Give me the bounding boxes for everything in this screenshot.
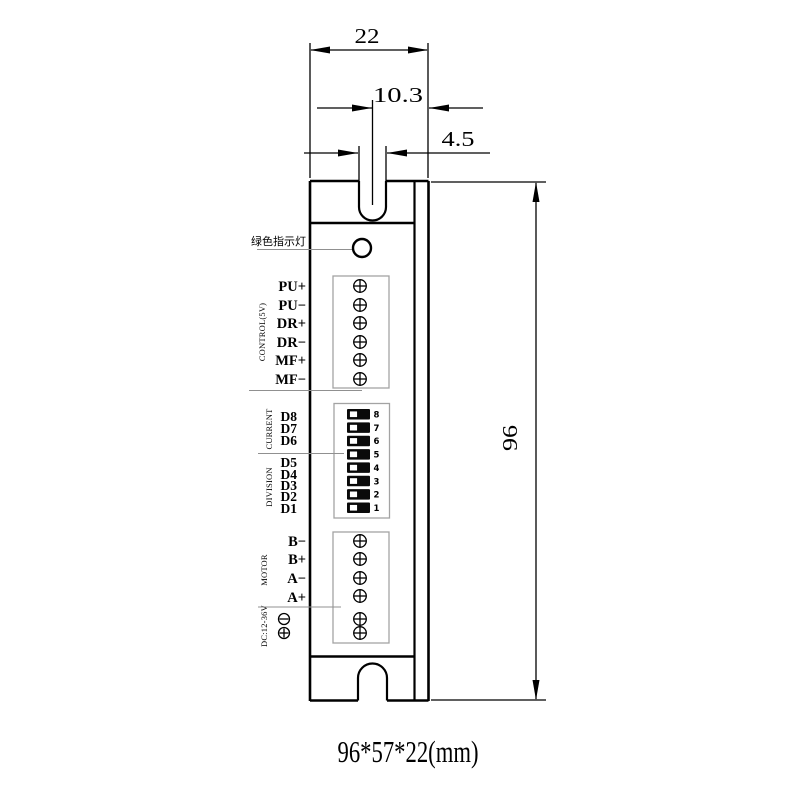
- dip-switch-knob-icon: [350, 464, 358, 471]
- dip-switch-number: 2: [374, 491, 380, 501]
- dip-switch-knob-icon: [350, 411, 358, 418]
- dip-pin-label: D6: [281, 433, 298, 448]
- overall-size-caption: 96*57*22(mm): [338, 734, 479, 769]
- dip-switch-knob-icon: [350, 505, 358, 512]
- dip-switch-block: [334, 404, 390, 519]
- screw-terminal-icon: [354, 535, 367, 548]
- dip-switch-knob-icon: [350, 491, 358, 498]
- motor-section: B− B+ A− A+ MOTOR DC:12-36V: [258, 532, 389, 647]
- arrow-left-icon: [387, 150, 407, 157]
- arrow-left-icon: [310, 47, 330, 54]
- dip-switch-8: 1: [347, 503, 380, 515]
- dip-pin-label: D1: [281, 501, 298, 516]
- screw-terminal-icon: [354, 317, 367, 330]
- dim-width-value: 22: [355, 24, 380, 48]
- dip-switch-number: 4: [374, 464, 380, 474]
- screw-terminal-icon: [354, 590, 367, 603]
- drawing-canvas: 22 10.3 4.5 96 绿色指示灯: [0, 0, 800, 800]
- current-group-label: CURRENT: [264, 408, 274, 450]
- control-pin-label: MF+: [275, 353, 306, 369]
- screw-terminal-icon: [354, 354, 367, 367]
- polarity-plus-icon: [279, 628, 290, 639]
- screw-terminal-icon: [354, 553, 367, 566]
- dip-switch-number: 8: [374, 411, 380, 421]
- dip-switch-5: 4: [347, 462, 380, 474]
- polarity-minus-icon: [279, 614, 290, 625]
- motor-pin-label: A+: [287, 590, 306, 606]
- dip-switch-6: 3: [347, 476, 380, 488]
- control-pin-label: PU+: [278, 279, 306, 295]
- control-section: PU+ PU− DR+ DR− MF+ MF− CONTROL(5V): [249, 276, 389, 391]
- motor-group-label: MOTOR: [259, 554, 269, 586]
- arrow-right-icon: [338, 150, 358, 157]
- control-group-label: CONTROL(5V): [257, 303, 267, 361]
- control-pin-label: PU−: [278, 298, 306, 314]
- screw-terminal-icon: [354, 336, 367, 349]
- indicator-label: 绿色指示灯: [251, 234, 306, 248]
- dip-switch-knob-icon: [350, 478, 358, 485]
- control-pin-label: DR−: [277, 335, 306, 351]
- dip-switch-number: 3: [374, 477, 380, 487]
- dip-switch-number: 6: [374, 437, 380, 447]
- device-body-outline: [310, 100, 429, 701]
- dimension-slot-4-5: 4.5: [304, 127, 490, 181]
- screw-terminal-icon: [354, 280, 367, 293]
- motor-pin-label: B+: [288, 552, 306, 568]
- technical-drawing: 22 10.3 4.5 96 绿色指示灯: [0, 0, 800, 800]
- dip-switch-knob-icon: [350, 424, 358, 431]
- dim-height-value: 96: [498, 425, 522, 451]
- dip-switch-3: 6: [347, 436, 380, 448]
- arrow-right-icon: [352, 105, 372, 112]
- dip-switch-knob-icon: [350, 438, 358, 445]
- dimension-height-96: 96: [431, 182, 546, 700]
- dip-switch-number: 1: [374, 504, 380, 514]
- green-led-icon: [353, 239, 371, 257]
- control-pin-label: MF−: [275, 372, 306, 388]
- arrow-down-icon: [533, 680, 540, 700]
- dip-switch-2: 7: [347, 422, 380, 434]
- screw-terminal-icon: [354, 373, 367, 386]
- dimension-offset-10-3: 10.3: [317, 83, 483, 112]
- dip-section: 8 7 6 5 4 3 2: [258, 404, 390, 519]
- dip-switch-7: 2: [347, 489, 380, 501]
- screw-terminal-icon: [354, 572, 367, 585]
- arrow-right-icon: [408, 47, 428, 54]
- dim-offset-value: 10.3: [373, 83, 423, 107]
- screw-terminal-icon: [354, 299, 367, 312]
- dip-switch-4: 5: [347, 449, 380, 461]
- control-pin-label: DR+: [277, 316, 306, 332]
- division-group-label: DIVISION: [264, 467, 274, 506]
- dip-switch-number: 7: [374, 424, 380, 434]
- screw-terminal-icon: [354, 627, 367, 640]
- arrow-up-icon: [533, 182, 540, 202]
- bottom-mounting-notch: [358, 664, 387, 701]
- arrow-left-icon: [429, 105, 449, 112]
- motor-pin-label: A−: [287, 571, 306, 587]
- dim-slot-value: 4.5: [442, 127, 475, 151]
- screw-terminal-icon: [354, 613, 367, 626]
- dip-switch-knob-icon: [350, 451, 358, 458]
- dip-switch-1: 8: [347, 409, 380, 421]
- power-group-label: DC:12-36V: [259, 604, 269, 647]
- dip-switch-number: 5: [374, 451, 380, 461]
- motor-pin-label: B−: [288, 534, 306, 550]
